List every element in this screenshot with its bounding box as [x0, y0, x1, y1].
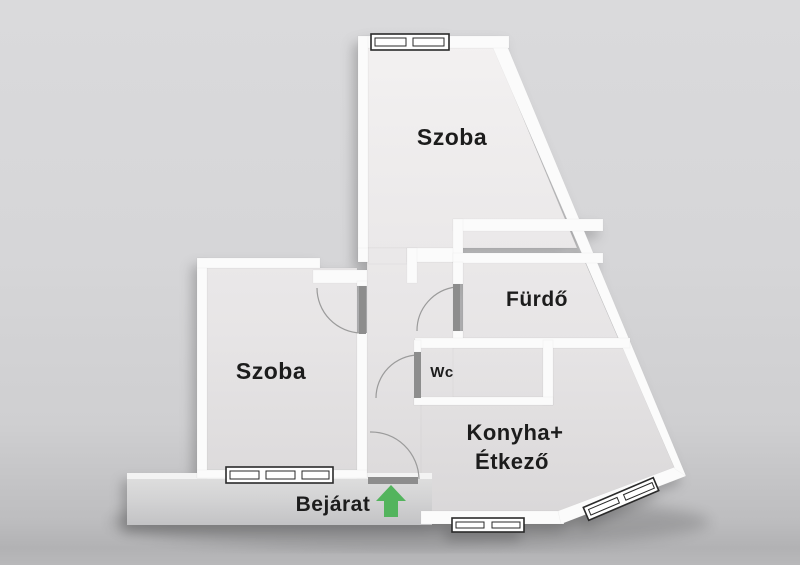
room-label-furdo: Fürdő — [506, 288, 568, 311]
wall-wc-right — [543, 340, 553, 405]
wall-szoba-left-top — [197, 258, 320, 268]
apartment — [127, 34, 686, 532]
floor-plan: Szoba Fürdő Szoba Wc Konyha+ Étkező Bejá… — [0, 0, 800, 565]
wall-szoba-top-bottom-a — [358, 248, 368, 262]
wall-wc-bottom — [414, 397, 553, 405]
floor-passage — [368, 248, 407, 264]
wall-furdo-bottom — [415, 338, 630, 348]
wall-szoba-left-right-a — [357, 281, 367, 286]
wall-wc-left-a — [414, 340, 421, 352]
window-konyha-bottom — [452, 518, 524, 532]
room-label-szoba-top: Szoba — [417, 124, 487, 150]
window-szoba-left — [226, 467, 333, 483]
wall-szoba-top-left — [358, 36, 368, 262]
room-label-wc: Wc — [430, 364, 454, 381]
floor-plan-canvas: Szoba Fürdő Szoba Wc Konyha+ Étkező Bejá… — [0, 0, 800, 565]
wall-furdo-top — [453, 253, 603, 263]
room-label-konyha-line1: Konyha+ — [466, 420, 563, 445]
wall-szoba-left-left — [197, 258, 207, 478]
room-label-konyha-line2: Étkező — [475, 449, 549, 474]
door-leaf-wc — [414, 352, 421, 398]
wall-szoba-top-bottom-right — [453, 219, 603, 231]
wall-furdo-left-a — [453, 262, 463, 284]
door-leaf-entrance — [368, 477, 418, 484]
wall-szoba-left-right-b — [357, 333, 367, 478]
room-label-szoba-left: Szoba — [236, 358, 306, 384]
entrance-label: Bejárat — [296, 493, 371, 516]
door-leaf-furdo — [453, 284, 460, 331]
wall-stub — [407, 248, 417, 283]
window-szoba-top — [371, 34, 449, 50]
door-leaf-szoba-left — [359, 286, 366, 334]
